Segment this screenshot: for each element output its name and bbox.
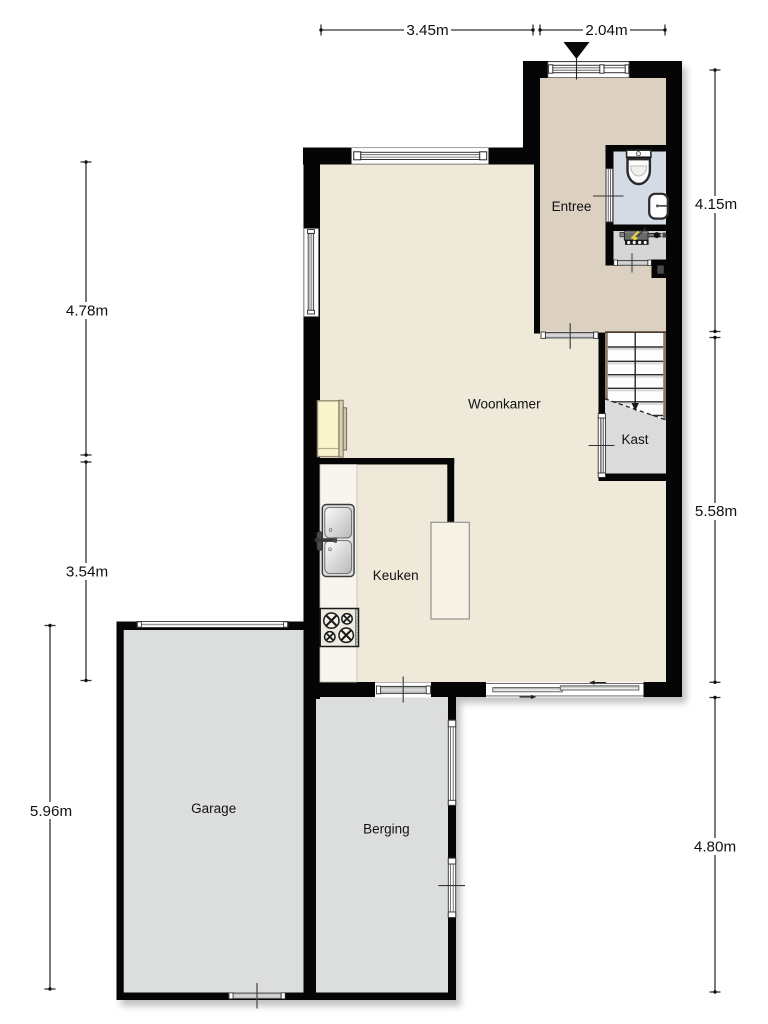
svg-text:3.54m: 3.54m <box>66 564 108 581</box>
svg-text:5.96m: 5.96m <box>30 803 72 820</box>
svg-text:4.80m: 4.80m <box>694 839 736 856</box>
svg-text:2.04m: 2.04m <box>585 22 627 39</box>
svg-text:3.45m: 3.45m <box>406 22 448 39</box>
svg-text:Entree: Entree <box>552 199 592 214</box>
svg-text:Berging: Berging <box>363 821 410 836</box>
svg-text:5.58m: 5.58m <box>695 503 737 520</box>
svg-text:4.15m: 4.15m <box>695 196 737 213</box>
svg-text:Garage: Garage <box>191 801 236 816</box>
svg-text:Woonkamer: Woonkamer <box>468 396 541 411</box>
svg-text:4.78m: 4.78m <box>66 303 108 320</box>
svg-text:Keuken: Keuken <box>373 568 419 583</box>
svg-text:Kast: Kast <box>621 432 648 447</box>
